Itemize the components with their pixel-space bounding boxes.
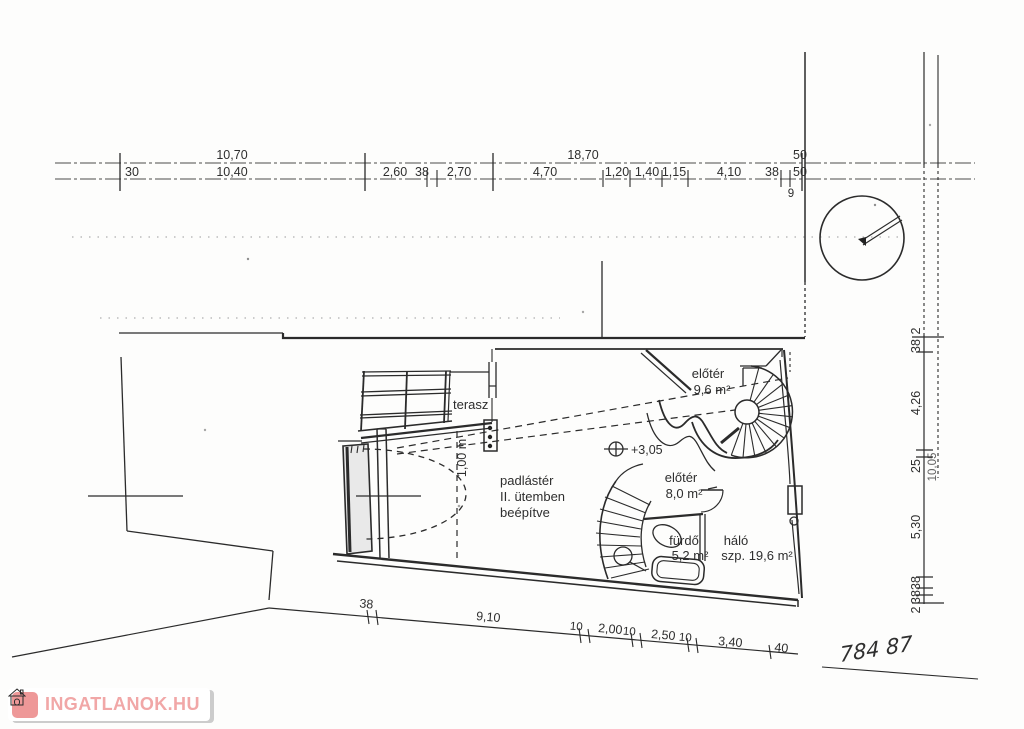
dim-label: 2,50 [651, 627, 677, 643]
dim-label: 38 [909, 339, 923, 353]
dim-label: 38 [909, 576, 923, 590]
watermark-badge: INGATLANOK.HU [8, 688, 210, 721]
handwritten-note: 784 87 [840, 630, 914, 667]
compass-circle [820, 196, 904, 280]
bottom-dimension-chain: 38 9,10 10 2,00 10 2,50 10 3,40 40 [12, 596, 978, 679]
level-value: +3,05 [631, 443, 663, 457]
property-boundaries [88, 52, 805, 600]
dim-label: 2,60 [383, 165, 407, 179]
dim-label: 4,70 [533, 165, 557, 179]
level-mark: +3,05 [604, 442, 663, 457]
dim-label: 1,15 [662, 165, 686, 179]
room-label-padlaster-2: II. ütemben [500, 489, 565, 504]
dim-label: 1,40 [635, 165, 659, 179]
dim-label: 3,40 [718, 634, 744, 650]
dim-label: 10,70 [216, 148, 247, 162]
dim-label: 4,10 [717, 165, 741, 179]
room-label-padlaster-1: padlástér [500, 473, 554, 488]
top-dimension-chain: 10,70 18,70 50 30 10,40 2,60 38 2,70 4,7… [55, 148, 975, 200]
dim-label: 25 [909, 459, 923, 473]
right-dimension-chain: 2 38 4,26 25 5,30 38 38 2 10,05 [909, 52, 944, 613]
room-label-halo: háló [724, 533, 749, 548]
dim-label: 10 [678, 631, 692, 644]
dim-label: 38 [765, 165, 779, 179]
headroom-height-label: 1,00 m [455, 439, 469, 477]
dim-label: 40 [774, 640, 789, 655]
dim-label: 2 [909, 327, 923, 334]
dim-label: 4,26 [909, 391, 923, 415]
dim-label: 9,10 [476, 609, 502, 625]
dim-label: 18,70 [567, 148, 598, 162]
dim-label: 10,05 [927, 453, 939, 482]
dim-label: 10,40 [216, 165, 247, 179]
dim-label: 2 [909, 606, 923, 613]
dim-label: 10 [622, 625, 636, 638]
watermark-text: INGATLANOK.HU [45, 694, 200, 715]
room-label-furdo: fürdő [669, 533, 699, 548]
room-area-halo: szp. 19,6 m² [721, 548, 793, 563]
dim-label: 38 [909, 590, 923, 604]
room-area-furdo: 5,2 m² [672, 548, 710, 563]
dim-label: 38 [359, 596, 374, 611]
room-labels: terasz előtér 9,6 m² padlástér II. ütemb… [453, 366, 793, 563]
dim-label: 38 [415, 165, 429, 179]
dim-label: 10 [569, 620, 583, 633]
dim-label: 30 [125, 165, 139, 179]
room-label-terasz: terasz [453, 397, 488, 412]
lower-staircase [596, 464, 651, 579]
room-label-eloter-upper: előtér [692, 366, 725, 381]
house-icon [12, 692, 38, 718]
room-label-padlaster-3: beépítve [500, 505, 550, 520]
floorplan-scan: 10,70 18,70 50 30 10,40 2,60 38 2,70 4,7… [0, 0, 1024, 729]
room-area-eloter-upper: 9,6 m² [694, 382, 732, 397]
spiral-staircase [721, 350, 793, 458]
dim-label: 2,00 [598, 621, 624, 637]
dim-label: 9 [788, 188, 794, 200]
dim-label: 5,30 [909, 515, 923, 539]
dim-label: 2,70 [447, 165, 471, 179]
floorplan-drawing: 10,70 18,70 50 30 10,40 2,60 38 2,70 4,7… [0, 0, 1024, 729]
room-area-eloter-lower: 8,0 m² [666, 486, 704, 501]
room-label-eloter-lower: előtér [665, 470, 698, 485]
door-swing-arc [701, 490, 723, 512]
dim-label: 1,20 [605, 165, 629, 179]
